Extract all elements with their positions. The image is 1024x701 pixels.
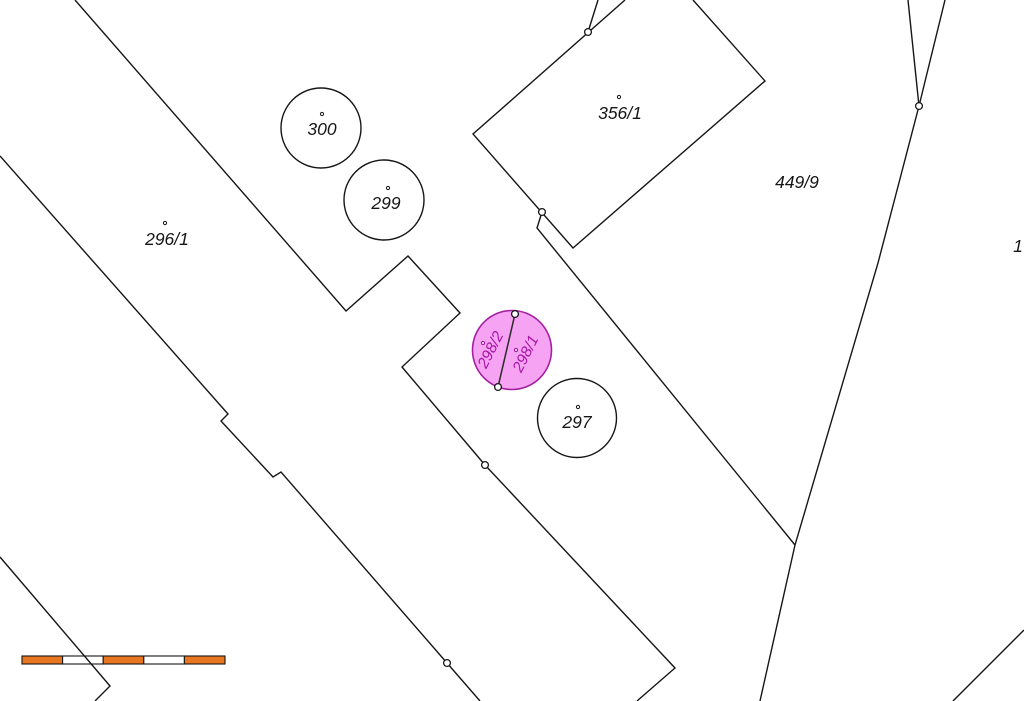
scale-bar-segment [184,656,225,664]
scale-bar-segment [103,656,144,664]
map-scale-bar [22,656,225,664]
parcel-label-297: 297 [561,412,592,432]
parcel-label-356-1: 356/1 [598,103,642,123]
survey-point-marker [512,311,519,318]
parcel-label-449-9: 449/9 [775,172,819,192]
scale-bar-segment [63,656,104,664]
boundary-bottom-right [953,630,1024,701]
scale-bar-segment [22,656,63,664]
survey-point-marker [444,660,451,667]
parcel-label-296-1: 296/1 [144,229,189,249]
map-canvas[interactable]: 300 299 297 296/1 356/1 449/9 1 298/2 29… [0,0,1024,701]
map-viewport: 300 299 297 296/1 356/1 449/9 1 298/2 29… [0,0,1024,701]
boundary-spur-top [588,0,598,32]
survey-point-marker [495,384,502,391]
parcel-label-299: 299 [370,193,400,213]
boundary-right-long [760,0,919,701]
boundary-bottom-left [0,557,110,701]
centroid-dots [163,95,620,408]
centroid-dot [576,405,579,408]
scale-bar-segment [144,656,185,664]
building-356-1-outline [473,0,765,248]
survey-point-marker [916,103,923,110]
centroid-dot [320,112,323,115]
boundary-upper-strip-edge [75,0,675,701]
parcel-label-1: 1 [1013,236,1023,256]
centroid-dot [617,95,620,98]
survey-point-marker [539,209,546,216]
survey-point-marker [482,462,489,469]
survey-point-marker [585,29,592,36]
boundary-right-top-v [919,0,945,106]
parcel-label-300: 300 [307,119,336,139]
centroid-dot [163,221,166,224]
boundary-lower-strip-edge [0,156,480,701]
centroid-dot [386,186,389,189]
